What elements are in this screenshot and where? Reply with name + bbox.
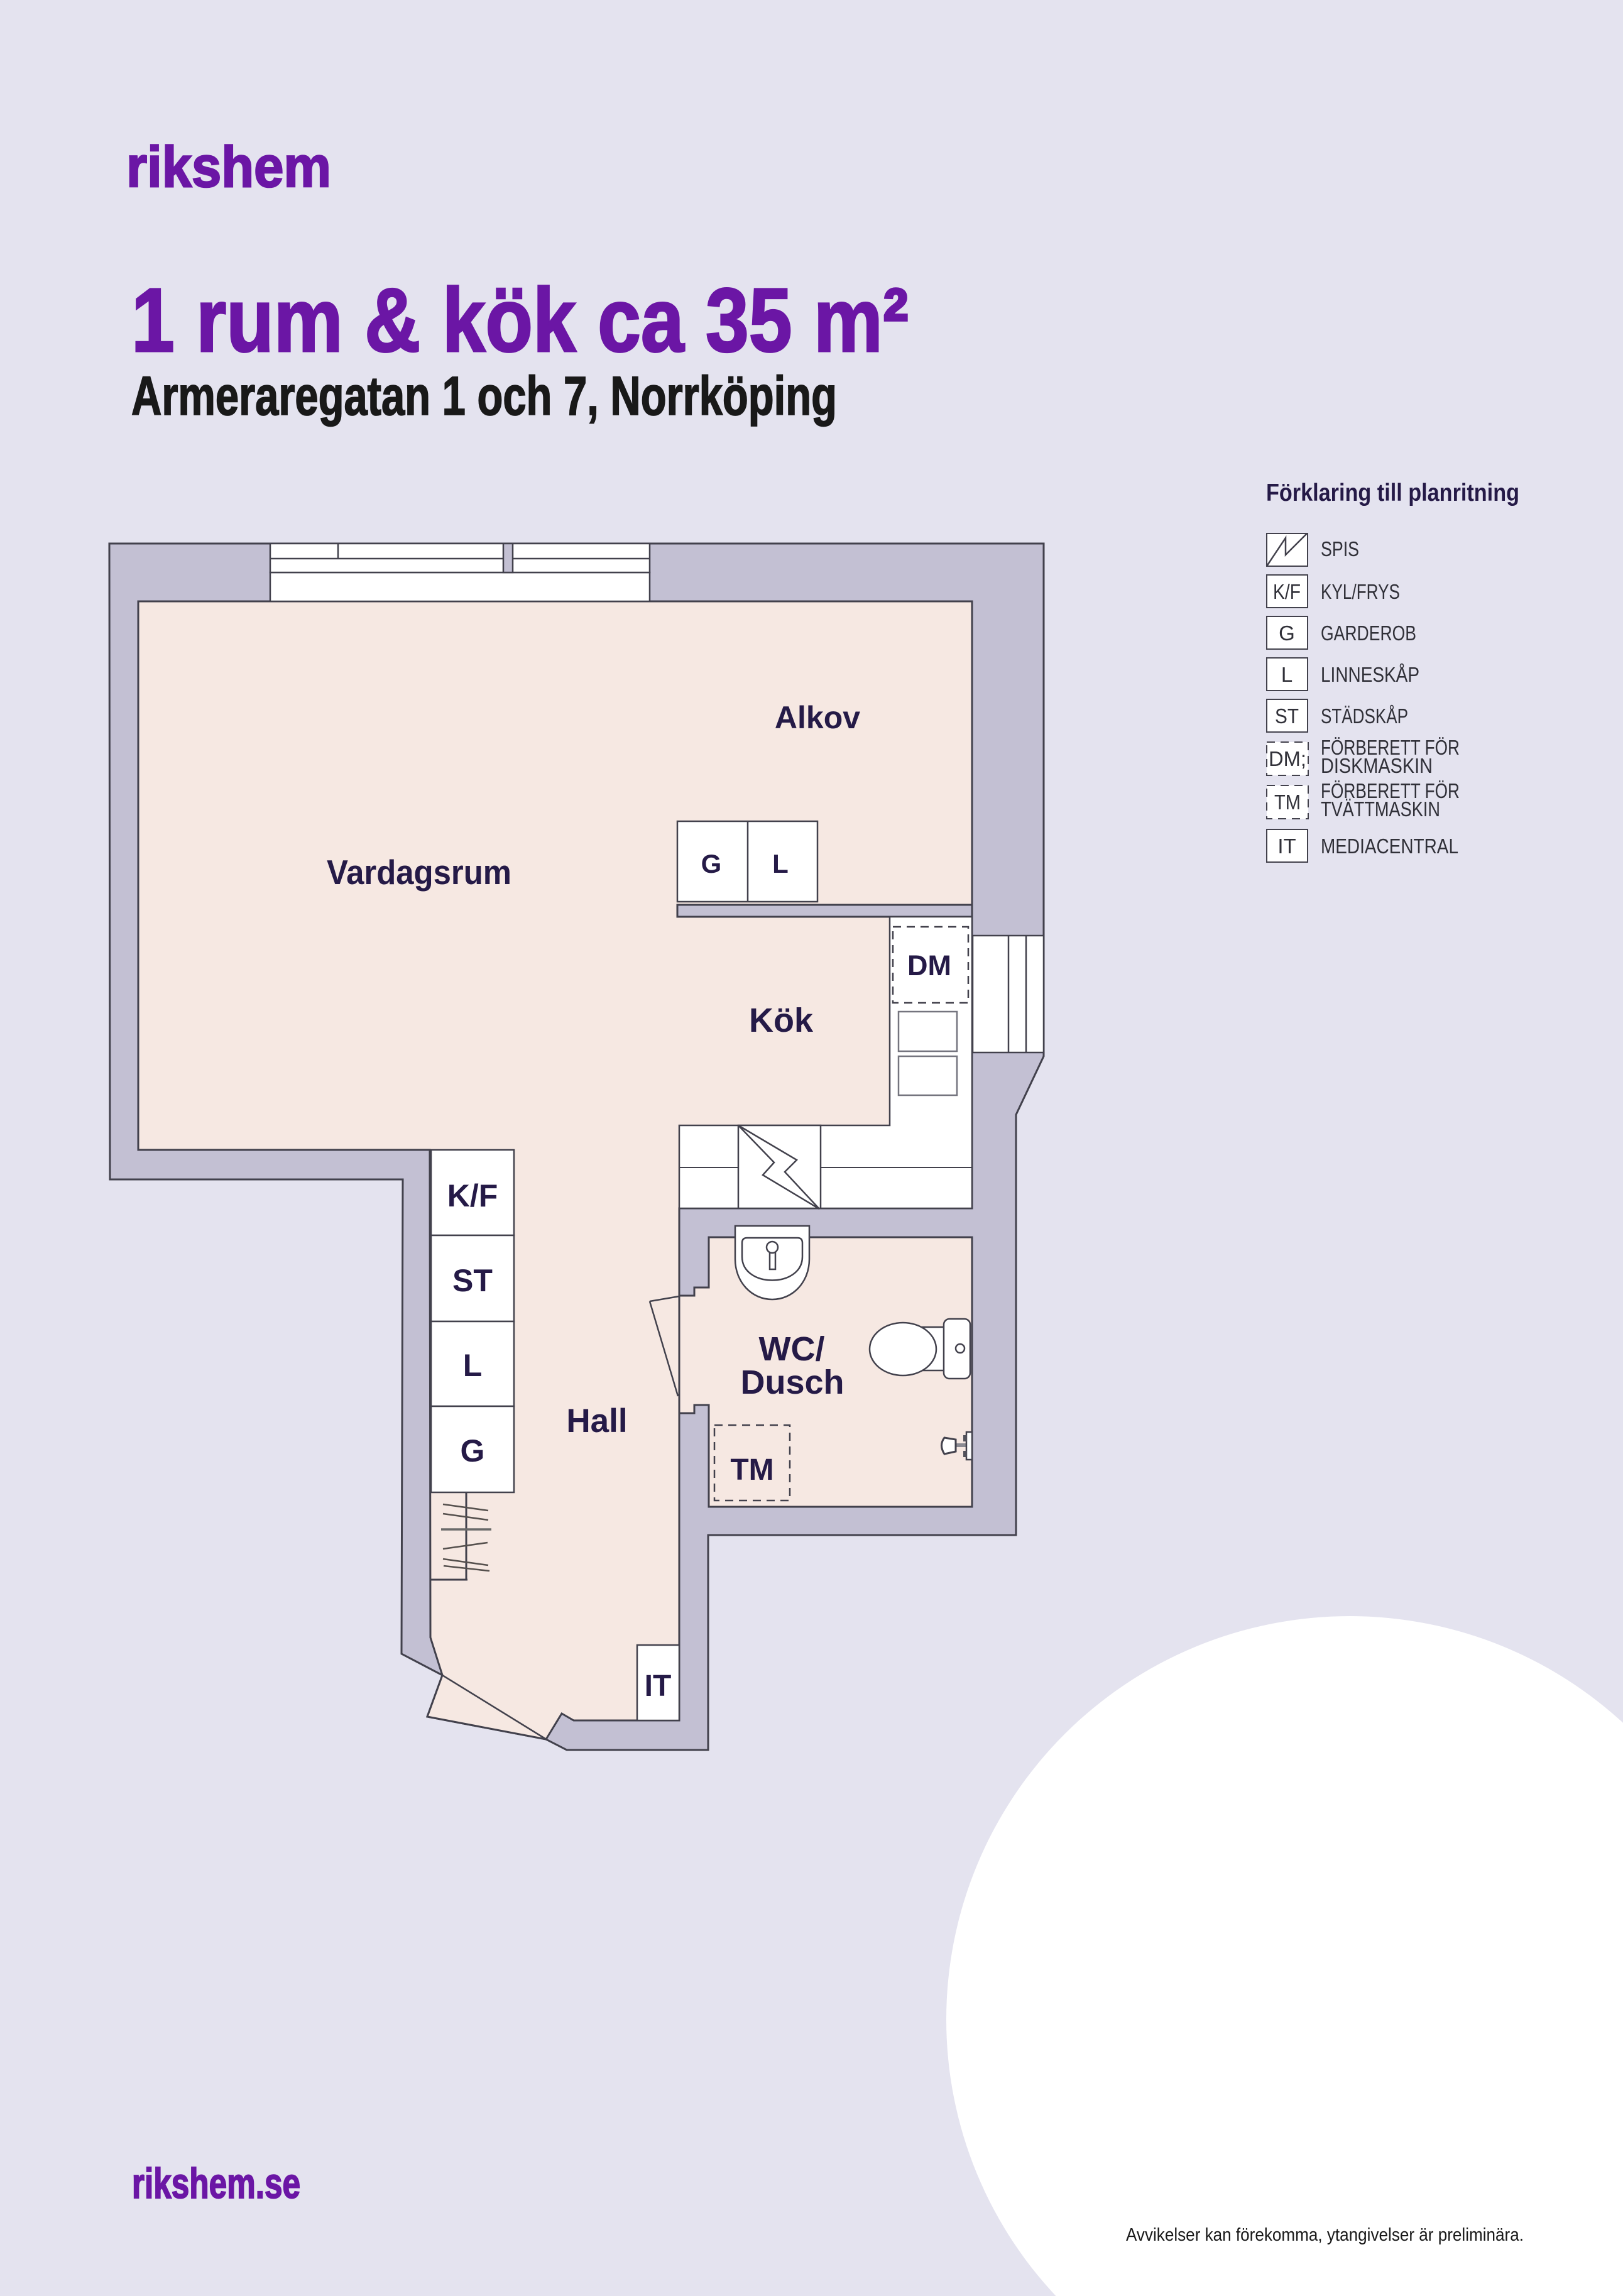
svg-text:Armeraregatan 1 och 7, Norrköp: Armeraregatan 1 och 7, Norrköping [131, 366, 837, 427]
svg-text:G: G [461, 1433, 485, 1468]
svg-text:1 rum & kök ca 35 m²: 1 rum & kök ca 35 m² [131, 270, 909, 371]
svg-text:DM;: DM; [1269, 747, 1306, 770]
svg-text:Kök: Kök [749, 1002, 814, 1039]
svg-text:TM: TM [1274, 790, 1301, 814]
svg-text:rikshem.se: rikshem.se [132, 2160, 300, 2207]
svg-text:TM: TM [730, 1453, 773, 1487]
svg-text:STÄDSKÅP: STÄDSKÅP [1321, 704, 1408, 728]
svg-text:DM: DM [907, 949, 951, 981]
svg-text:Hall: Hall [566, 1402, 627, 1440]
svg-text:LINNESKÅP: LINNESKÅP [1321, 663, 1419, 686]
svg-text:L: L [1281, 663, 1292, 686]
svg-text:Dusch: Dusch [740, 1364, 844, 1401]
svg-text:ST: ST [1275, 704, 1299, 728]
svg-text:Avvikelser kan förekomma, ytan: Avvikelser kan förekomma, ytangivelser ä… [1126, 2225, 1524, 2245]
svg-text:ST: ST [452, 1263, 493, 1298]
svg-text:MEDIACENTRAL: MEDIACENTRAL [1321, 834, 1458, 858]
svg-text:Förklaring till planritning: Förklaring till planritning [1266, 479, 1519, 506]
svg-text:K/F: K/F [447, 1178, 498, 1213]
svg-text:DISKMASKIN: DISKMASKIN [1321, 754, 1433, 777]
svg-text:KYL/FRYS: KYL/FRYS [1321, 580, 1400, 603]
svg-text:G: G [1279, 621, 1295, 645]
svg-text:IT: IT [1277, 834, 1296, 858]
svg-text:IT: IT [645, 1670, 672, 1703]
svg-text:Vardagsrum: Vardagsrum [327, 853, 511, 892]
svg-text:SPIS: SPIS [1321, 537, 1359, 560]
svg-text:L: L [772, 849, 789, 878]
svg-text:K/F: K/F [1273, 580, 1301, 603]
svg-text:rikshem: rikshem [126, 135, 331, 199]
svg-text:L: L [463, 1348, 483, 1383]
svg-text:WC/: WC/ [759, 1330, 825, 1368]
svg-text:GARDEROB: GARDEROB [1321, 621, 1416, 645]
svg-text:G: G [701, 849, 722, 878]
svg-text:TVÄTTMASKIN: TVÄTTMASKIN [1321, 797, 1440, 821]
svg-text:Alkov: Alkov [775, 700, 860, 735]
